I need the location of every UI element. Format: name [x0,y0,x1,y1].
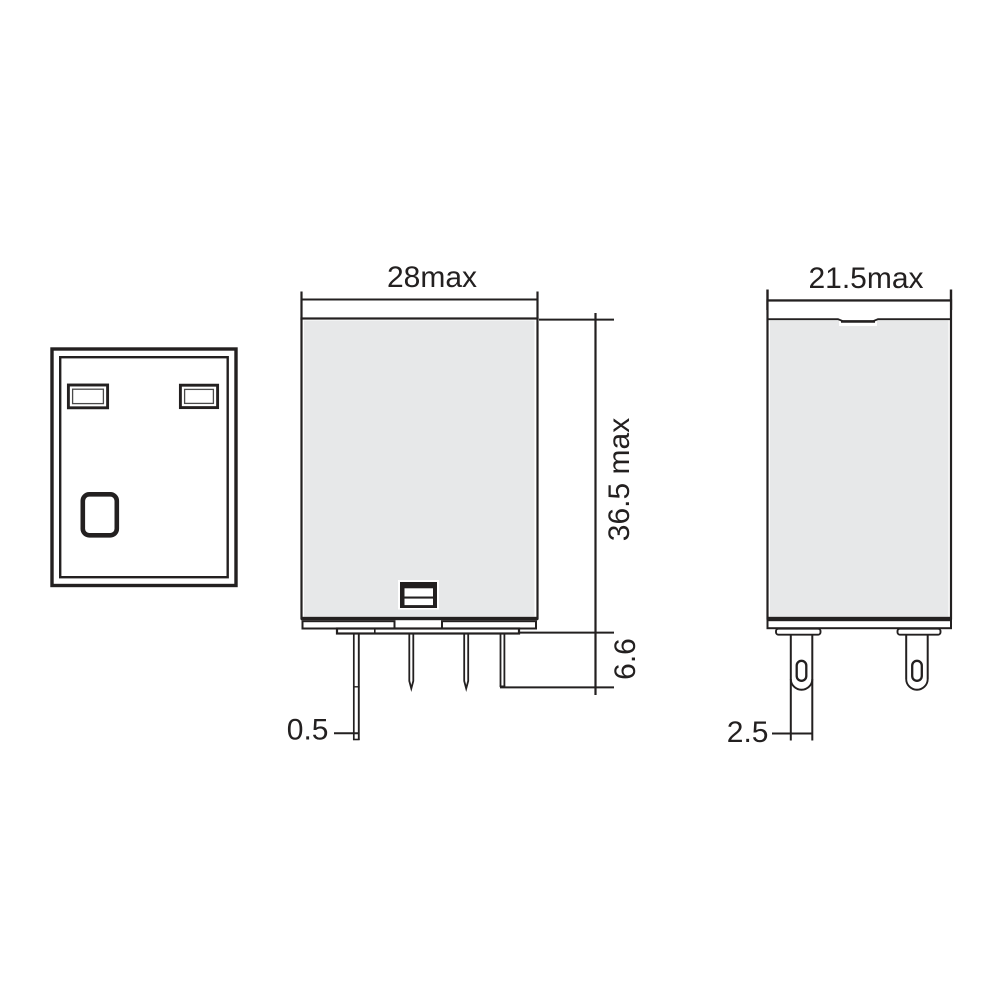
svg-text:36.5 max: 36.5 max [603,418,636,541]
svg-text:28max: 28max [387,261,477,294]
svg-text:6.6: 6.6 [609,638,642,680]
svg-text:21.5max: 21.5max [808,262,923,295]
svg-text:2.5: 2.5 [727,716,769,749]
svg-text:0.5: 0.5 [287,714,329,747]
